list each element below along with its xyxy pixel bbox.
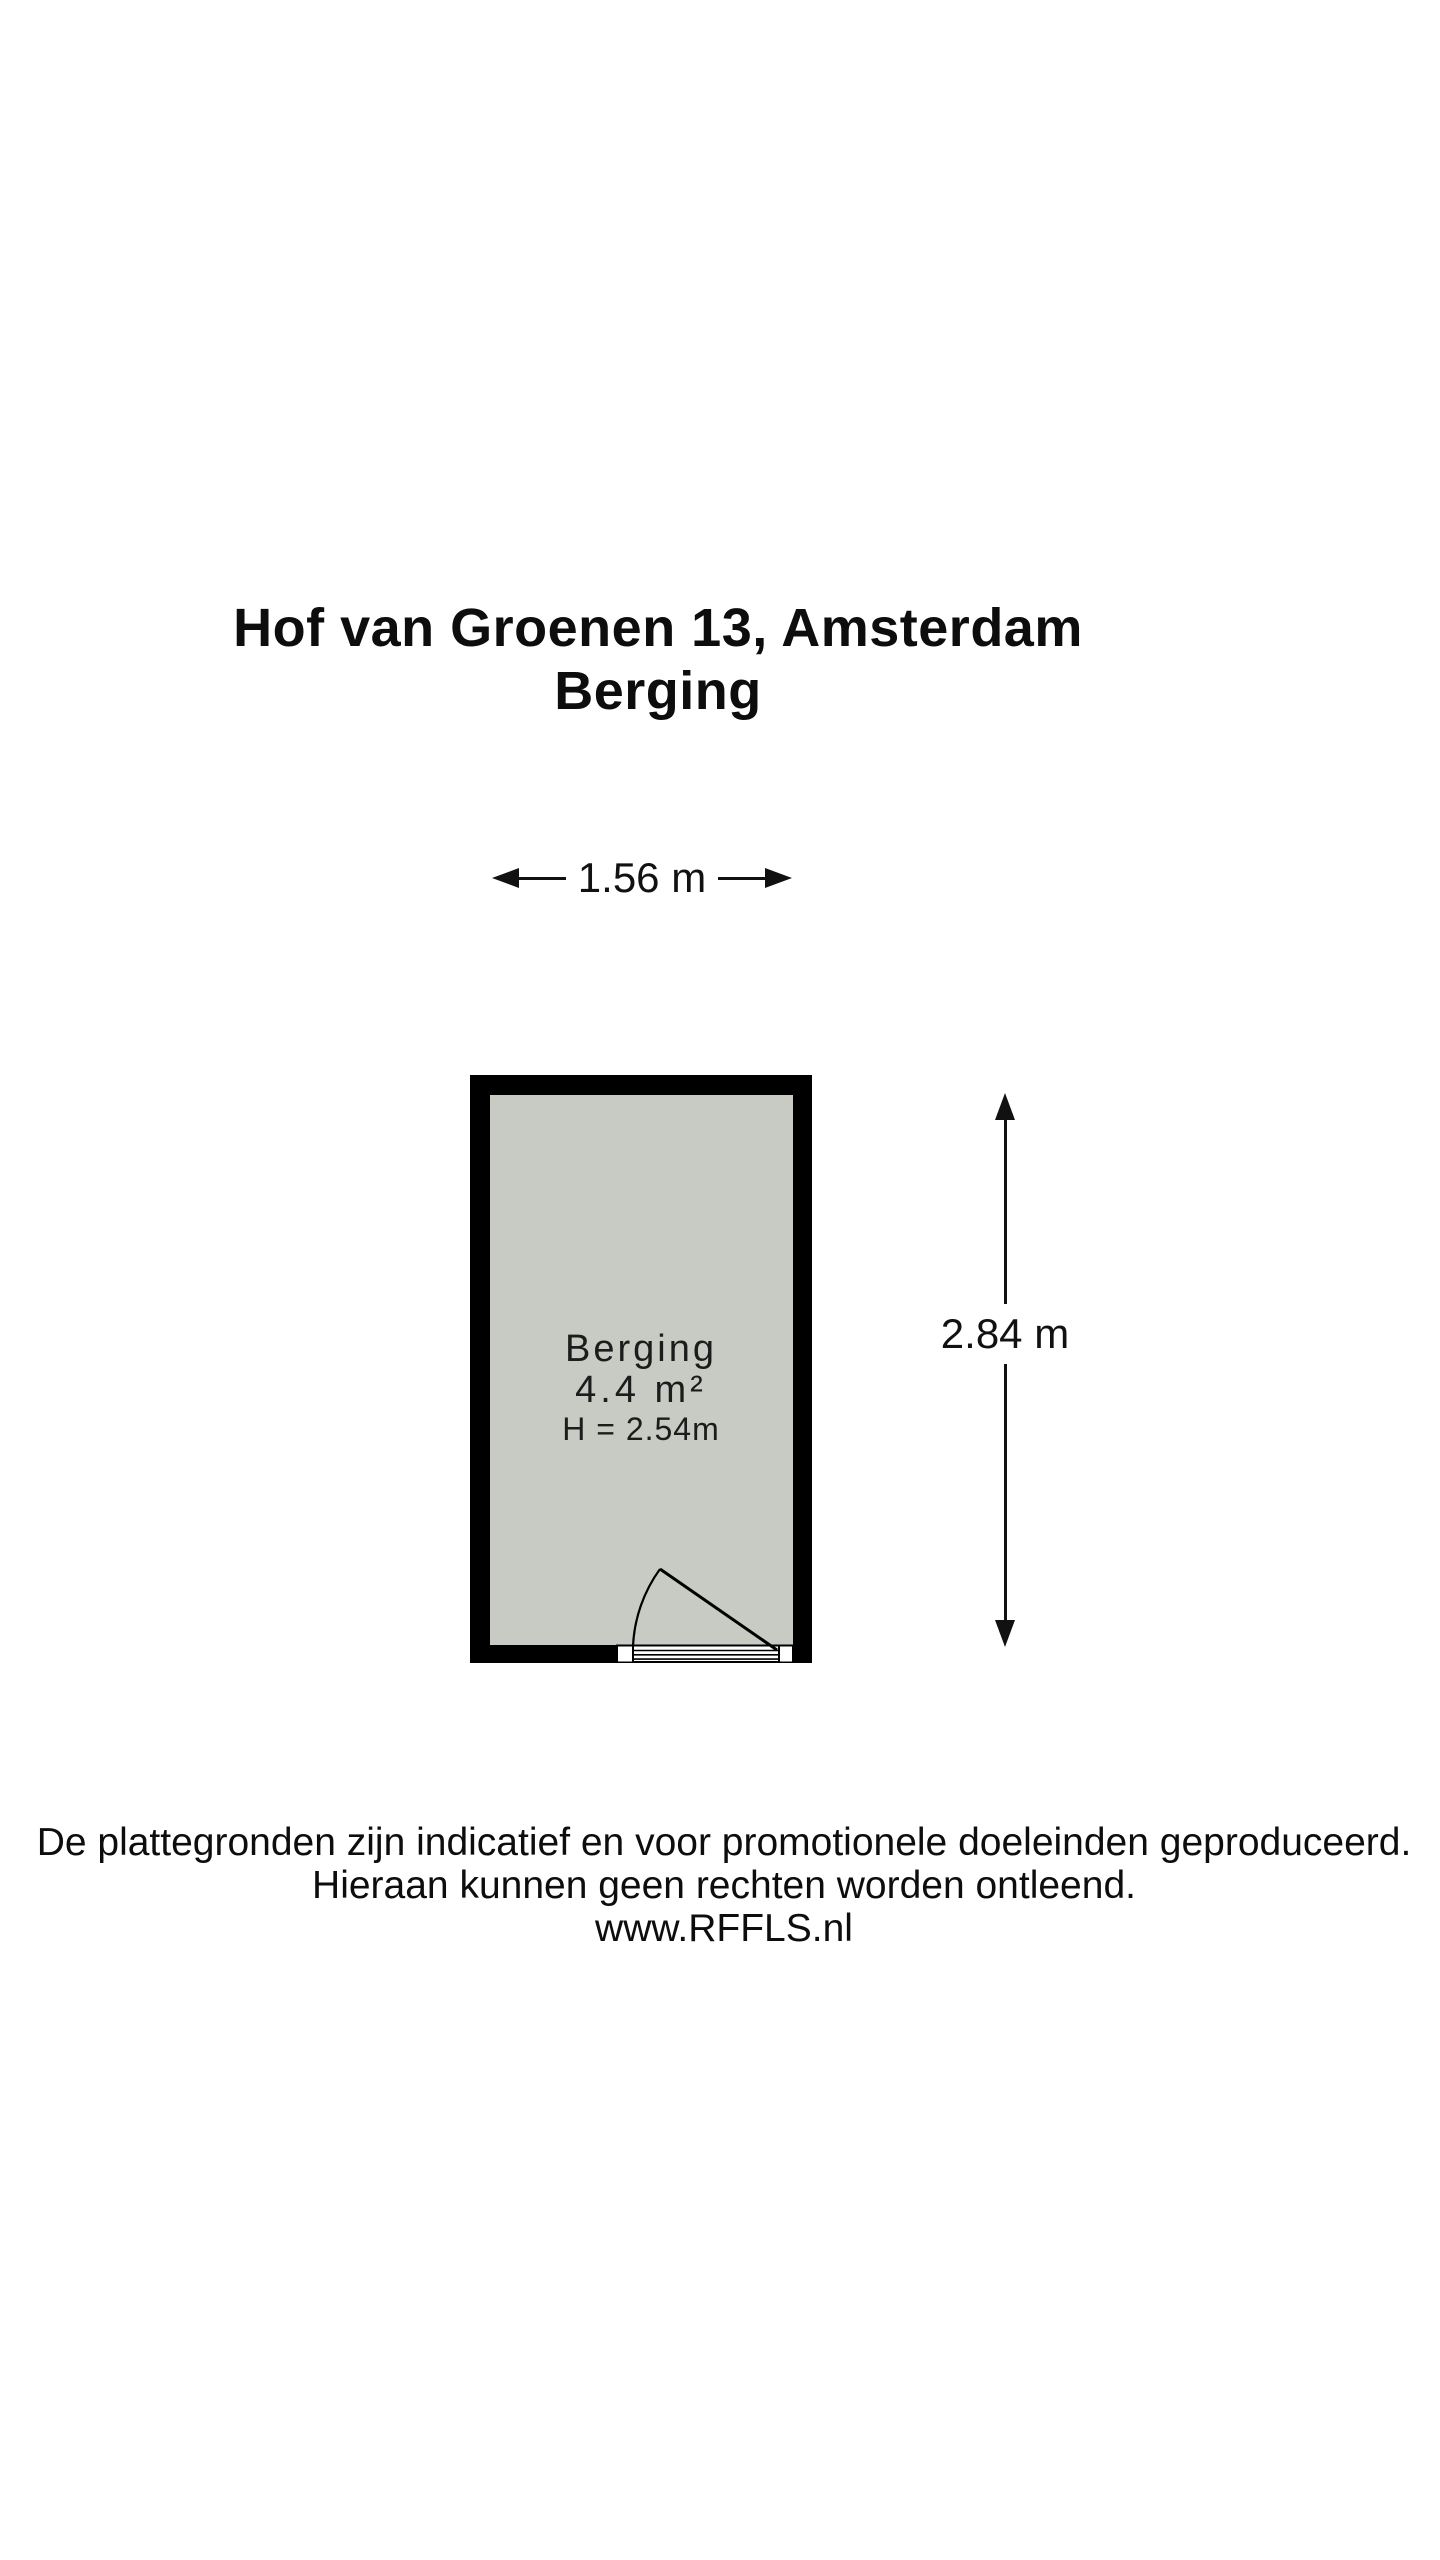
- door-jamb-right: [779, 1646, 793, 1663]
- plan-title-room: Berging: [188, 660, 1128, 723]
- dimension-line-lower: [1004, 1364, 1007, 1620]
- disclaimer-line-2: Hieraan kunnen geen rechten worden ontle…: [4, 1864, 1440, 1907]
- width-dimension: 1.56 m: [492, 855, 792, 901]
- plan-title-address: Hof van Groenen 13, Amsterdam: [188, 597, 1128, 660]
- dimension-line-left: [519, 877, 566, 880]
- room-area-label: 4.4 m²: [470, 1370, 812, 1410]
- dimension-line-right: [718, 877, 765, 880]
- arrow-left-icon: [492, 868, 519, 888]
- arrow-up-icon: [995, 1093, 1015, 1120]
- website-url: www.RFFLS.nl: [4, 1907, 1440, 1950]
- door-threshold: [617, 1646, 793, 1663]
- room-label: Berging 4.4 m² H = 2.54m: [470, 1328, 812, 1448]
- width-dimension-label: 1.56 m: [578, 854, 706, 902]
- disclaimer-line-1: De plattegronden zijn indicatief en voor…: [4, 1821, 1440, 1864]
- floorplan-page: Hof van Groenen 13, Amsterdam Berging 1.…: [0, 0, 1440, 2560]
- arrow-down-icon: [995, 1620, 1015, 1647]
- door-jamb-left: [617, 1646, 633, 1663]
- disclaimer: De plattegronden zijn indicatief en voor…: [4, 1821, 1440, 1950]
- room-name-label: Berging: [470, 1328, 812, 1370]
- room-height-label: H = 2.54m: [470, 1410, 812, 1448]
- plan-title: Hof van Groenen 13, Amsterdam Berging: [188, 597, 1128, 723]
- arrow-right-icon: [765, 868, 792, 888]
- height-dimension-label: 2.84 m: [941, 1310, 1069, 1358]
- height-dimension: 2.84 m: [960, 1093, 1050, 1647]
- dimension-line-upper: [1004, 1120, 1007, 1304]
